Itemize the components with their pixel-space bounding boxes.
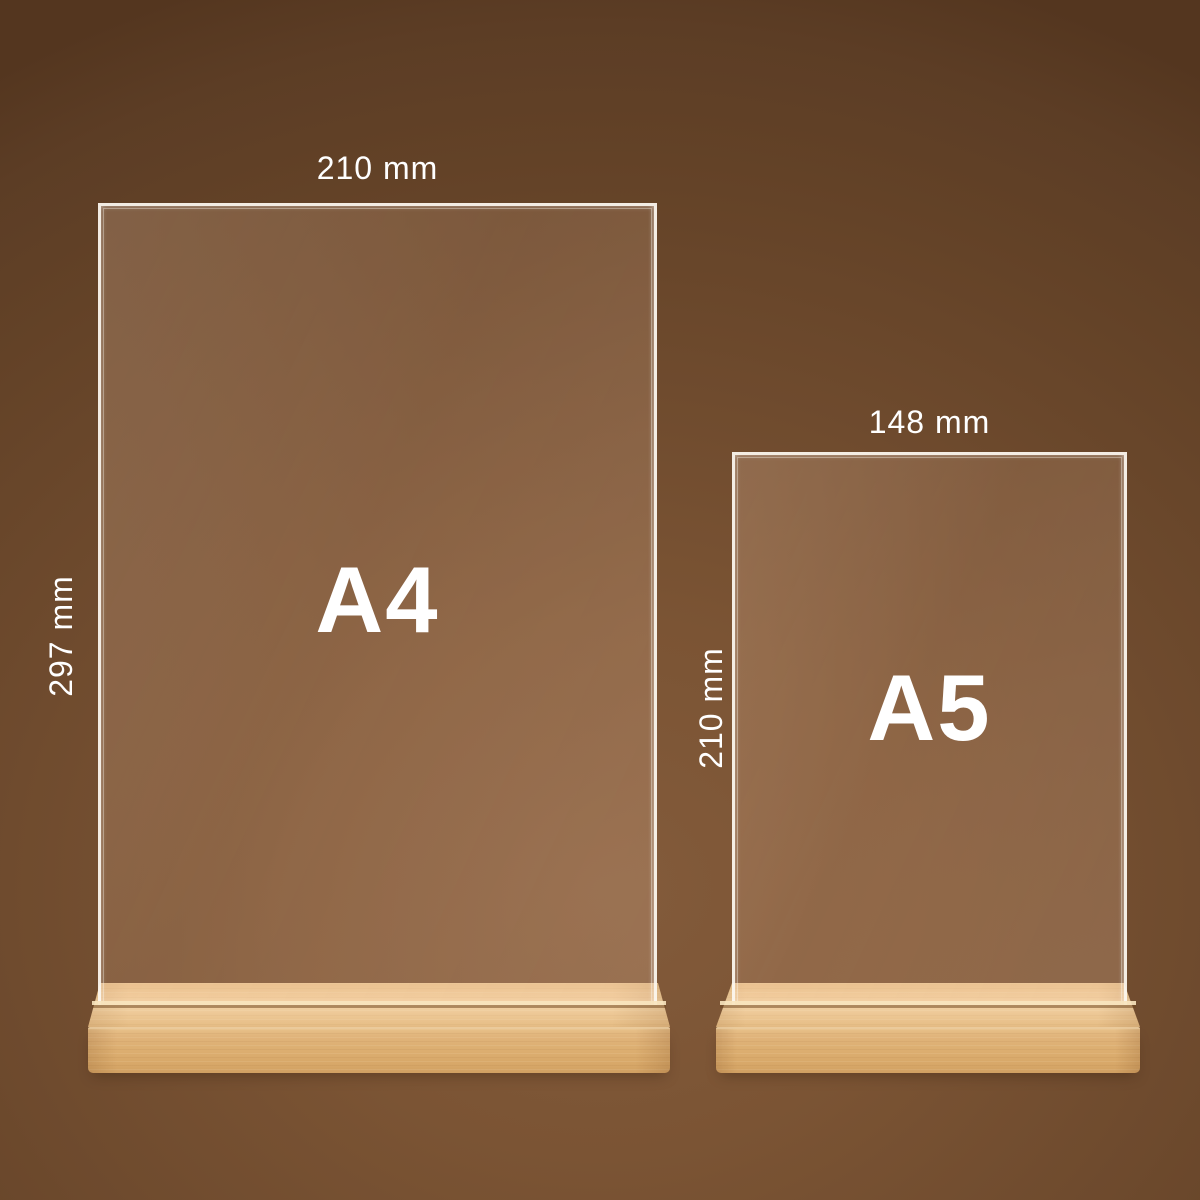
- scene-background: 210 mm 297 mm A4 148 mm 210 mm A5: [0, 0, 1200, 1200]
- a5-base-slot-shadow: [720, 1005, 1136, 1008]
- a4-wooden-base-front-face: [88, 1027, 670, 1073]
- a5-size-label: A5: [732, 648, 1127, 768]
- a4-width-dimension-label: 210 mm: [98, 146, 657, 190]
- a5-height-dimension-label: 210 mm: [691, 598, 731, 818]
- a4-base-slot-shadow: [92, 1005, 666, 1008]
- a5-wooden-base-front-face: [716, 1027, 1140, 1073]
- a4-size-label: A4: [98, 540, 657, 660]
- a4-height-dimension-label: 297 mm: [41, 526, 81, 746]
- a5-width-dimension-label: 148 mm: [732, 400, 1127, 444]
